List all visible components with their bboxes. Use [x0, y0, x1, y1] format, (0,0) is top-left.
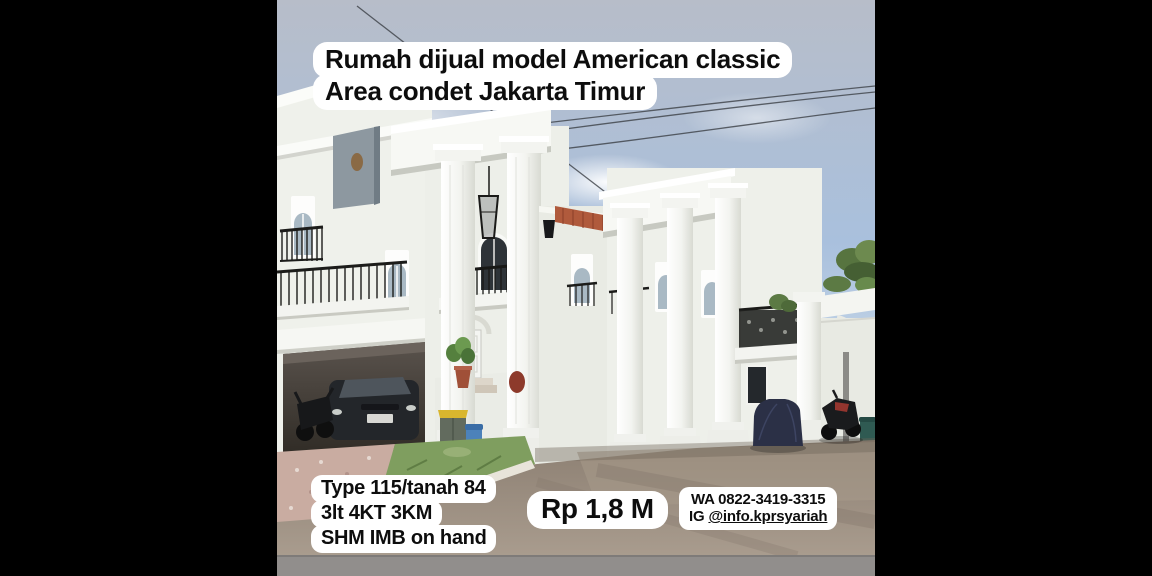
- car-in-carport: [329, 377, 419, 440]
- wall-lamp: [543, 220, 555, 238]
- covered-car: [750, 399, 806, 453]
- caption-title-line1: Rumah dijual model American classic: [313, 42, 792, 78]
- caption-specs-rooms: 3lt 4KT 3KM: [311, 500, 442, 528]
- red-object: [509, 371, 525, 393]
- instagram-line: IG@info.kprsyariah: [689, 508, 827, 525]
- instagram-handle: @info.kprsyariah: [708, 508, 827, 525]
- wing-wall: [539, 206, 609, 470]
- caption-title-line2: Area condet Jakarta Timur: [313, 74, 657, 110]
- right-portico-columns: [608, 183, 750, 464]
- listing-image: { "labels": { "title": { "line1": "Rumah…: [0, 0, 1152, 576]
- caption-contact: WA 0822-3419-3315 IG@info.kprsyariah: [679, 487, 837, 530]
- footer-strip: [277, 555, 875, 576]
- gray-wall-panel: [333, 126, 380, 209]
- whatsapp-number: WA 0822-3419-3315: [689, 491, 827, 508]
- far-column: [797, 302, 821, 420]
- property-photo: Rumah dijual model American classic Area…: [277, 0, 875, 576]
- dark-french-window: [747, 366, 767, 404]
- caption-specs-type: Type 115/tanah 84: [311, 475, 496, 503]
- caption-specs-docs: SHM IMB on hand: [311, 525, 496, 553]
- price-text: Rp 1,8 M: [527, 491, 668, 529]
- balcony-railing-upper-left: [280, 227, 323, 261]
- instagram-prefix: IG: [689, 508, 704, 525]
- caption-specs: Type 115/tanah 84 3lt 4KT 3KM SHM IMB on…: [311, 475, 496, 550]
- caption-title: Rumah dijual model American classic Area…: [313, 42, 792, 106]
- caption-price: Rp 1,8 M: [527, 491, 668, 529]
